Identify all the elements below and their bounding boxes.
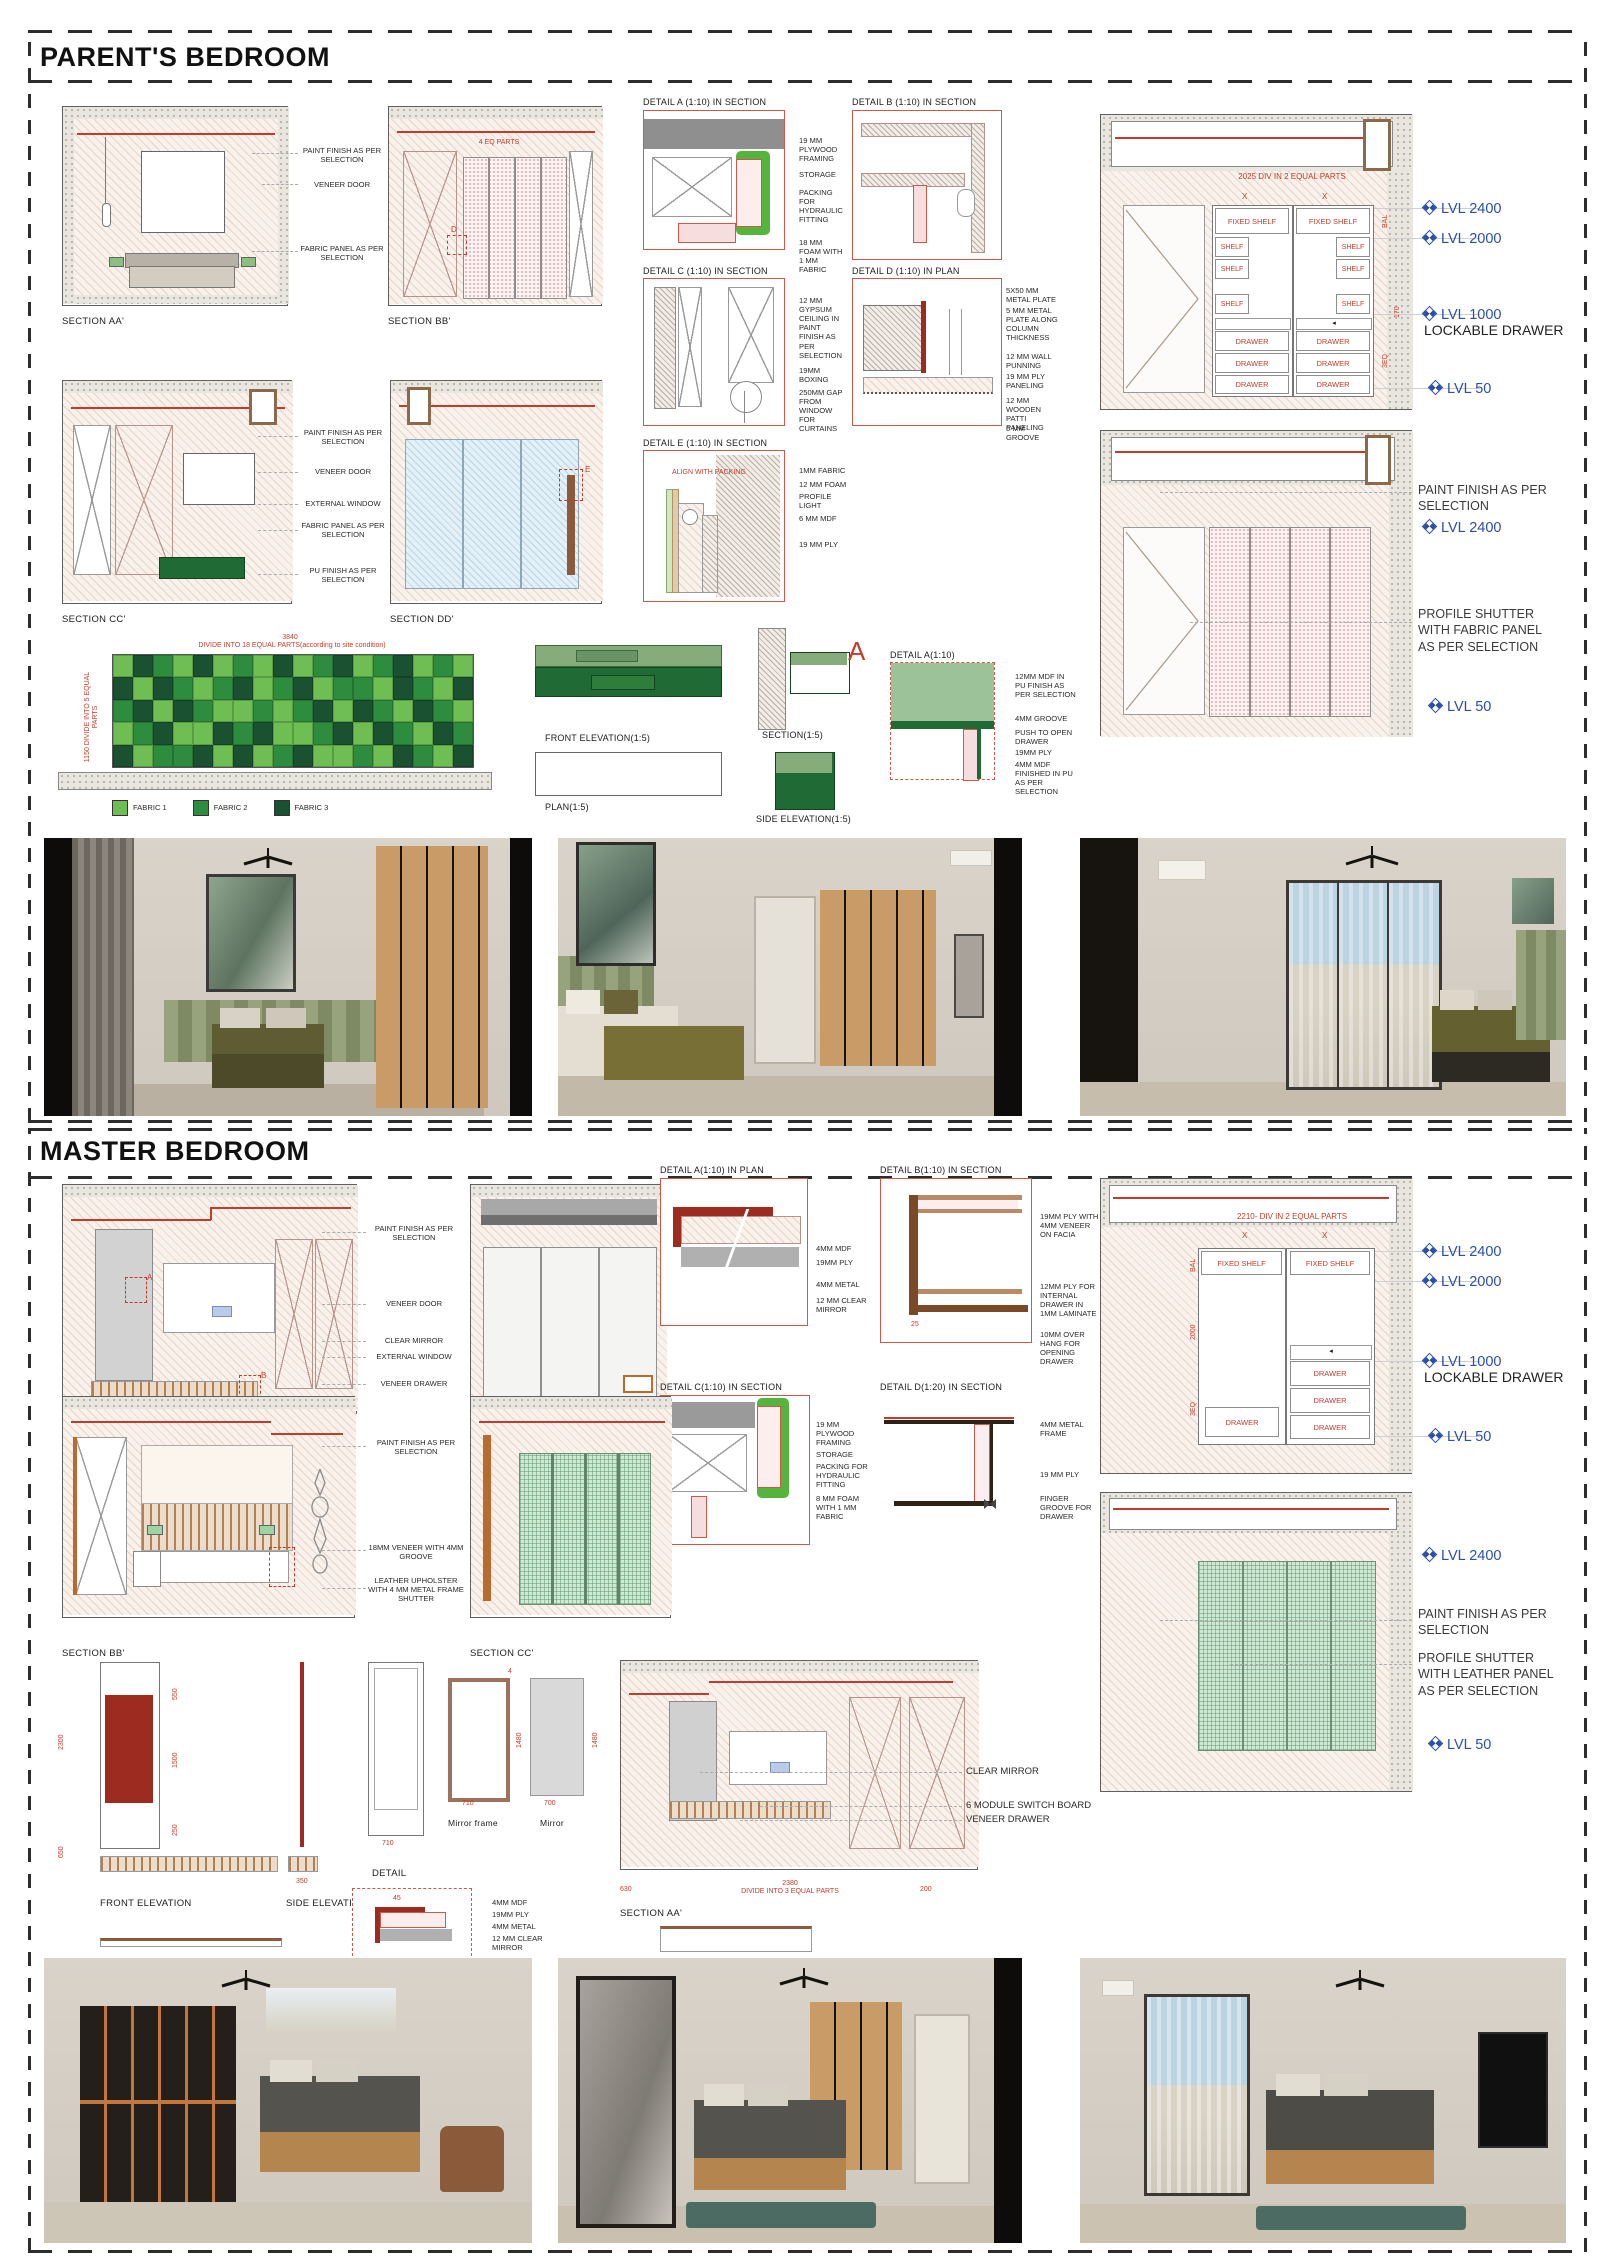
- master-render-3: [1080, 1958, 1566, 2243]
- frame-line: [28, 30, 31, 1122]
- callout: 250MM GAP FROM WINDOW FOR CURTAINS: [799, 388, 845, 434]
- fabric-cell: [193, 677, 213, 699]
- callout: STORAGE: [799, 170, 845, 179]
- callout: 18 MM FOAM WITH 1 MM FABRIC: [799, 238, 845, 274]
- callout: EXTERNAL WINDOW: [300, 499, 386, 508]
- callout: CLEAR MIRROR: [966, 1766, 1096, 1777]
- tall-mirror: [576, 1976, 676, 2228]
- callout: 4MM GROOVE: [1015, 714, 1077, 723]
- dim: 3EQ: [1190, 1402, 1198, 1416]
- callout: 4MM METAL: [816, 1280, 872, 1289]
- callout: 18MM VENEER WITH 4MM GROOVE: [368, 1543, 464, 1561]
- pillow: [566, 990, 600, 1014]
- fabric2-swatch: [193, 800, 209, 816]
- level-marker-icon: [1422, 519, 1438, 535]
- callout: PAINT FINISH AS PER SELECTION: [368, 1438, 464, 1456]
- callout: LEATHER UPHOLSTER WITH 4 MM METAL FRAME …: [368, 1576, 464, 1603]
- callout: FABRIC PANEL AS PER SELECTION: [300, 244, 384, 262]
- drawing-label: Mirror frame: [448, 1818, 498, 1828]
- pillow: [1478, 990, 1512, 1010]
- callout: 12MM MDF IN PU FINISH AS PER SELECTION: [1015, 672, 1077, 699]
- parent-render-1: [44, 838, 532, 1116]
- callout: PUSH TO OPEN DRAWER: [1015, 728, 1077, 746]
- callout: 6 MODULE SWITCH BOARD: [966, 1800, 1106, 1811]
- level-marker-icon: [1422, 1243, 1438, 1259]
- bed: [129, 266, 235, 288]
- bed-base: [1432, 1052, 1550, 1082]
- niche: [623, 1375, 653, 1393]
- console-section: [790, 652, 850, 694]
- dim-note: 4 EQ PARTS: [449, 139, 549, 147]
- ceiling-fan-icon: [218, 1970, 274, 1992]
- dim: 2000: [1190, 1324, 1198, 1340]
- bed: [694, 2100, 846, 2158]
- callout: PAINT FINISH AS PER SELECTION: [1418, 482, 1548, 515]
- pillow: [1440, 990, 1474, 1010]
- callout: 5 MM METAL PLATE ALONG COLUMN THICKNESS: [1006, 306, 1060, 342]
- wardrobe: [820, 890, 936, 1066]
- door: [914, 2014, 970, 2184]
- external-window: [405, 439, 579, 589]
- dim: BAL: [1382, 215, 1390, 228]
- drawing-label: SECTION(1:5): [762, 730, 823, 740]
- wardrobe-dark: [1080, 838, 1138, 1116]
- ceiling-fan-icon: [240, 848, 296, 870]
- fabric-cell: [453, 700, 473, 722]
- fabric-cell: [393, 722, 413, 744]
- fabric-cell: [173, 677, 193, 699]
- green-accent-wall: [1516, 930, 1566, 1040]
- fabric-cell: [373, 722, 393, 744]
- parent-detail-c: [643, 278, 785, 426]
- bed: [260, 2076, 420, 2132]
- master-section-cc-drawing: [470, 1396, 671, 1618]
- callout: 4MM MDF: [492, 1898, 562, 1907]
- fabric-cell: [113, 722, 133, 744]
- fabric-cell: [233, 700, 253, 722]
- rug: [1256, 2206, 1466, 2230]
- fabric-cell: [393, 677, 413, 699]
- ac-unit: [1102, 1980, 1134, 1996]
- dim: 700: [544, 1800, 556, 1808]
- fabric-cell: [333, 677, 353, 699]
- callout: PAINT FINISH AS PER SELECTION: [300, 146, 384, 164]
- pillow: [704, 2084, 744, 2106]
- window: [1144, 1994, 1250, 2196]
- dim: 170: [1394, 306, 1402, 318]
- fabric-cell: [253, 700, 273, 722]
- fabric-cell: [373, 700, 393, 722]
- pillow: [1276, 2074, 1320, 2096]
- level-marker-icon: [1422, 1353, 1438, 1369]
- fabric-cell: [133, 655, 153, 677]
- curtain: [72, 838, 134, 1116]
- frame-line: [28, 80, 1586, 83]
- fabric-cell: [173, 655, 193, 677]
- fabric-cell: [313, 655, 333, 677]
- fabric-cell: [113, 655, 133, 677]
- detail-title: DETAIL E (1:10) IN SECTION: [643, 438, 767, 448]
- pillow: [220, 1008, 260, 1028]
- dim: 650: [58, 1846, 66, 1858]
- callout: EXTERNAL WINDOW: [368, 1352, 460, 1361]
- level-marker-icon: [1422, 1273, 1438, 1289]
- fabric-cell: [293, 655, 313, 677]
- master-section-bb-drawing: [62, 1396, 355, 1618]
- tv: [1478, 2032, 1548, 2148]
- callout: VENEER DRAWER: [368, 1379, 460, 1388]
- fabric-cell: [393, 700, 413, 722]
- fabric-cell: [233, 745, 253, 767]
- parent-detail-e: ALIGN WITH PACKING: [643, 450, 785, 602]
- level-row: LVL 2400: [1424, 1243, 1501, 1261]
- detail-marker: [125, 1277, 147, 1303]
- callout: VENEER DRAWER: [966, 1814, 1106, 1825]
- bed-panel: [163, 1263, 275, 1333]
- detail-note: ALIGN WITH PACKING: [672, 469, 752, 477]
- callout: 19MM PLY: [1015, 748, 1077, 757]
- fabric-cell: [133, 677, 153, 699]
- bed-panel: [729, 1731, 827, 1785]
- fabric-cell: [293, 700, 313, 722]
- callout: 4MM MDF FINISHED IN PU AS PER SELECTION: [1015, 760, 1077, 796]
- wardrobe-carcass: FIXED SHELF FIXED SHELF DRAWER ◂ DRAWER …: [1198, 1248, 1375, 1445]
- wall-strip: [758, 628, 786, 730]
- fabric-cell: [193, 700, 213, 722]
- wardrobe-door: [849, 1697, 901, 1849]
- frame-line: [28, 30, 1586, 33]
- detail-title: DETAIL B(1:10) IN SECTION: [880, 1165, 1002, 1175]
- fabric-cell: [413, 722, 433, 744]
- callout: 4MM METAL FRAME: [1040, 1420, 1092, 1438]
- pillow: [266, 1008, 306, 1028]
- callout: PAINT FINISH AS PER SELECTION: [368, 1224, 460, 1242]
- callout: 19 MM PLY: [1040, 1470, 1092, 1479]
- dim: 1500: [172, 1752, 180, 1768]
- fabric-cell: [333, 745, 353, 767]
- callout: 12 MM GYPSUM CEILING IN PAINT FINISH AS …: [799, 296, 845, 360]
- ac-unit: [950, 850, 992, 866]
- master-bottom-aa-drawing: [620, 1660, 978, 1870]
- wardrobe-door: [315, 1239, 353, 1389]
- fabric-cell: [113, 677, 133, 699]
- console-front-bottom: [535, 667, 722, 697]
- level-marker-icon: [1422, 1547, 1438, 1563]
- dim-note: 1150 DIVIDE INTO 5 EQUAL PARTS: [84, 662, 100, 772]
- headboard-upper: [141, 1445, 293, 1505]
- fabric3-swatch: [274, 800, 290, 816]
- fabric-shutters: [463, 157, 567, 299]
- ceiling-fan-icon: [1342, 846, 1402, 870]
- fabric1-swatch: [112, 800, 128, 816]
- fabric-cell: [153, 655, 173, 677]
- window: [1286, 880, 1442, 1090]
- section-label: SECTION AA': [62, 316, 124, 327]
- fabric-cell: [393, 655, 413, 677]
- pillow: [604, 990, 638, 1014]
- dim: 710: [462, 1800, 474, 1808]
- veneer-door: [403, 151, 457, 297]
- callout: 5 MM GROOVE: [1006, 424, 1060, 442]
- ceiling-fan-icon: [1332, 1970, 1388, 1992]
- level-marker-icon: [1428, 380, 1444, 396]
- callout: 19 MM PLY: [799, 540, 849, 549]
- fabric-cell: [253, 655, 273, 677]
- detail-title: DETAIL D(1:20) IN SECTION: [880, 1382, 1002, 1392]
- master-detail-d: [880, 1395, 1035, 1545]
- fabric-cell: [433, 677, 453, 699]
- fabric-cell: [433, 745, 453, 767]
- fabric-cell: [353, 722, 373, 744]
- callout: 6 MM MDF: [799, 514, 849, 523]
- mirror-unit-outline: [368, 1662, 424, 1836]
- bed-platform: [147, 1551, 289, 1583]
- level-row: LVL 2400: [1424, 1547, 1501, 1565]
- parent-detail-d: [852, 278, 1002, 426]
- dim: 630: [620, 1886, 632, 1894]
- fabric-cell: [433, 700, 453, 722]
- dim: 2300: [58, 1734, 66, 1750]
- headboard-fabric-grid: [112, 654, 474, 768]
- master-detail-b: 25: [880, 1178, 1032, 1343]
- fabric-cell: [393, 745, 413, 767]
- switch-board: [212, 1306, 232, 1317]
- drawing-label: DETAIL: [372, 1868, 406, 1879]
- fabric-cell: [433, 722, 453, 744]
- callout: 19MM PLY: [492, 1910, 562, 1919]
- wardrobe-door: [275, 1239, 313, 1389]
- fabric-cell: [353, 700, 373, 722]
- callout: PU FINISH AS PER SELECTION: [300, 566, 386, 584]
- artwork: [183, 453, 255, 505]
- fabric-cell: [153, 677, 173, 699]
- master-detail-a: [660, 1178, 808, 1326]
- callout: 19 MM PLYWOOD FRAMING: [799, 136, 845, 163]
- artwork: [141, 151, 225, 233]
- dim: 250: [172, 1824, 180, 1836]
- frame-line: [28, 2250, 1586, 2253]
- fabric-cell: [453, 745, 473, 767]
- fabric-cell: [273, 677, 293, 699]
- detail-marker: [269, 1547, 295, 1587]
- detail-marker: [447, 235, 467, 255]
- callout: 19MM BOXING: [799, 366, 845, 384]
- shelf-cell: FIXED SHELF: [1215, 208, 1289, 234]
- plan-strip: [660, 1926, 812, 1952]
- level-marker-icon: [1422, 306, 1438, 322]
- callout: FINGER GROOVE FOR DRAWER: [1040, 1494, 1092, 1521]
- dim: 200: [920, 1886, 932, 1894]
- callout: 10MM OVER HANG FOR OPENING DRAWER: [1040, 1330, 1100, 1366]
- callout: PROFILE SHUTTER WITH FABRIC PANEL AS PER…: [1418, 606, 1558, 655]
- fabric-cell: [413, 677, 433, 699]
- fabric-cell: [133, 700, 153, 722]
- bed-base: [260, 2132, 420, 2172]
- parent-render-3: [1080, 838, 1566, 1116]
- fabric-cell: [253, 722, 273, 744]
- rug: [686, 2202, 876, 2228]
- master-render-2: [558, 1958, 1022, 2243]
- fabric-cell: [153, 700, 173, 722]
- frame-line: [28, 1128, 31, 2252]
- fabric-cell: [253, 677, 273, 699]
- callout: 19MM PLY: [816, 1258, 872, 1267]
- fabric-cell: [373, 745, 393, 767]
- drawing-sheet: PARENT'S BEDROOM SECTION AA' PAINT FINIS…: [0, 0, 1600, 2263]
- fabric-cell: [213, 700, 233, 722]
- lockable-drawer-slot: ◂: [1290, 1345, 1372, 1360]
- detail-title: DETAIL D (1:10) IN PLAN: [852, 266, 960, 276]
- parent-section-cc-drawing: [62, 380, 292, 604]
- fabric-cell: [153, 722, 173, 744]
- fabric-cell: [453, 655, 473, 677]
- niche: [1363, 119, 1391, 171]
- fabric-cell: [413, 745, 433, 767]
- lockable-drawer-label: LOCKABLE DRAWER: [1424, 322, 1564, 338]
- fabric-cell: [213, 677, 233, 699]
- callout: PAINT FINISH AS PER SELECTION: [1418, 1606, 1558, 1639]
- parent-section-dd-drawing: E: [390, 380, 602, 604]
- fabric-cell: [193, 745, 213, 767]
- fabric-cell: [173, 722, 193, 744]
- callout: 8 MM FOAM WITH 1 MM FABRIC: [816, 1494, 868, 1521]
- parent-detail-a: [643, 110, 785, 250]
- callout: STORAGE: [816, 1450, 868, 1459]
- pillow: [1324, 2074, 1368, 2096]
- level-row: LVL 2000: [1424, 230, 1501, 248]
- callout: 4MM METAL: [492, 1922, 562, 1931]
- dim: 350: [296, 1878, 308, 1886]
- callout: 12 MM CLEAR MIRROR: [816, 1296, 872, 1314]
- fabric-cell: [193, 722, 213, 744]
- fabric-cell: [273, 745, 293, 767]
- mirror-band: [681, 1247, 799, 1267]
- callout: VENEER DOOR: [368, 1299, 460, 1308]
- mirror-frame-drawing: [448, 1678, 510, 1802]
- detail-ref-marker: A: [848, 636, 865, 667]
- master-render-1: [44, 1958, 532, 2243]
- fabric-cell: [113, 700, 133, 722]
- fabric-cell: [213, 655, 233, 677]
- console-detail-a: [890, 662, 995, 780]
- fabric-cell: [333, 700, 353, 722]
- level-row: LVL 50: [1430, 1428, 1491, 1446]
- level-row: LVL 50: [1430, 380, 1491, 398]
- dim: 2380: [700, 1880, 880, 1888]
- window: [266, 1988, 396, 2032]
- drawing-label: PLAN(1:5): [545, 802, 589, 812]
- callout: CLEAR MIRROR: [368, 1336, 460, 1345]
- drawing-label: FRONT ELEVATION(1:5): [545, 733, 650, 743]
- detail-title: DETAIL C(1:10) IN SECTION: [660, 1382, 782, 1392]
- fabric-legend: FABRIC 1 FABRIC 2 FABRIC 3: [112, 800, 328, 816]
- level-marker-icon: [1422, 200, 1438, 216]
- frame-line: [28, 1120, 1586, 1123]
- bed-base: [1266, 2150, 1434, 2184]
- parent-render-2: [558, 838, 1022, 1116]
- fabric-cell: [353, 655, 373, 677]
- fabric-cell: [293, 745, 313, 767]
- dim: 550: [172, 1688, 180, 1700]
- fabric-cell: [373, 677, 393, 699]
- artwork: [576, 842, 656, 966]
- master-section-aa-drawing: A B: [62, 1184, 357, 1414]
- master-detail-c: [660, 1395, 810, 1545]
- wardrobe-carcass: FIXED SHELF FIXED SHELF SHELF SHELF SHEL…: [1212, 205, 1374, 397]
- door-leaf: [1123, 527, 1205, 715]
- fabric-cell: [433, 655, 453, 677]
- parent-section-aa-drawing: [62, 106, 288, 306]
- pillow: [270, 2060, 312, 2082]
- callout: 19 MM PLYWOOD FRAMING: [816, 1420, 868, 1447]
- lounge-chair: [440, 2126, 504, 2192]
- drawing-label: Mirror: [540, 1818, 564, 1828]
- fabric-cell: [313, 677, 333, 699]
- section-label: SECTION CC': [470, 1648, 534, 1659]
- callout: 12 MM FOAM: [799, 480, 849, 489]
- fabric-cell: [353, 677, 373, 699]
- callout: 4MM MDF: [816, 1244, 872, 1253]
- page-title-master: MASTER BEDROOM: [40, 1136, 310, 1167]
- floor: [558, 1076, 1022, 1116]
- callout: 12 MM CLEAR MIRROR: [492, 1934, 562, 1952]
- pillow: [748, 2084, 788, 2106]
- detail-title: DETAIL C (1:10) IN SECTION: [643, 266, 768, 276]
- callout: 19 MM PLY PANELING: [1006, 372, 1060, 390]
- side-table: [133, 1551, 161, 1587]
- leather-shutter-panel: [519, 1453, 651, 1605]
- dim-note: DIVIDE INTO 3 EQUAL PARTS: [680, 1888, 900, 1896]
- fabric-cell: [233, 677, 253, 699]
- callout: FABRIC PANEL AS PER SELECTION: [300, 521, 386, 539]
- fabric-cell: [313, 700, 333, 722]
- detail-title: DETAIL A(1:10): [890, 650, 955, 660]
- dim: BAL: [1190, 1259, 1198, 1272]
- fabric-cell: [413, 655, 433, 677]
- section-label: SECTION AA': [620, 1908, 682, 1919]
- tall-mirror: [95, 1229, 153, 1381]
- bed-base: [212, 1054, 324, 1088]
- callout: VENEER DOOR: [300, 467, 386, 476]
- detail-title: DETAIL A (1:10) IN SECTION: [643, 97, 766, 107]
- section-label: SECTION DD': [390, 614, 454, 625]
- sheer-curtain: [1289, 883, 1439, 1087]
- lockable-drawer-slot: ◂: [1296, 318, 1372, 330]
- fabric-cell: [213, 745, 233, 767]
- decor-lamp: [309, 1469, 331, 1589]
- ac-unit: [1158, 860, 1206, 880]
- wardrobe-dark: [80, 2006, 236, 2202]
- bed-base: [694, 2158, 846, 2190]
- level-row: LVL 2400: [1424, 519, 1501, 537]
- fabric-cell: [353, 745, 373, 767]
- fabric-cell: [453, 677, 473, 699]
- level-marker-icon: [1422, 230, 1438, 246]
- ceiling-fan-icon: [776, 1968, 832, 1990]
- callout: PACKING FOR HYDRAULIC FITTING: [816, 1462, 868, 1489]
- wardrobe: [376, 846, 488, 1108]
- wardrobe-door: [909, 1697, 965, 1849]
- fabric-cell: [113, 745, 133, 767]
- dim-note: 2210- DIV IN 2 EQUAL PARTS: [1212, 1212, 1372, 1221]
- detail-title: DETAIL B (1:10) IN SECTION: [852, 97, 976, 107]
- section-label: SECTION BB': [388, 316, 451, 327]
- parent-detail-b: [852, 110, 1002, 260]
- dim: 1480: [592, 1732, 600, 1748]
- fabric-cell: [333, 722, 353, 744]
- section-label: SECTION CC': [62, 614, 126, 625]
- drawing-label: SIDE ELEVATION(1:5): [756, 814, 851, 824]
